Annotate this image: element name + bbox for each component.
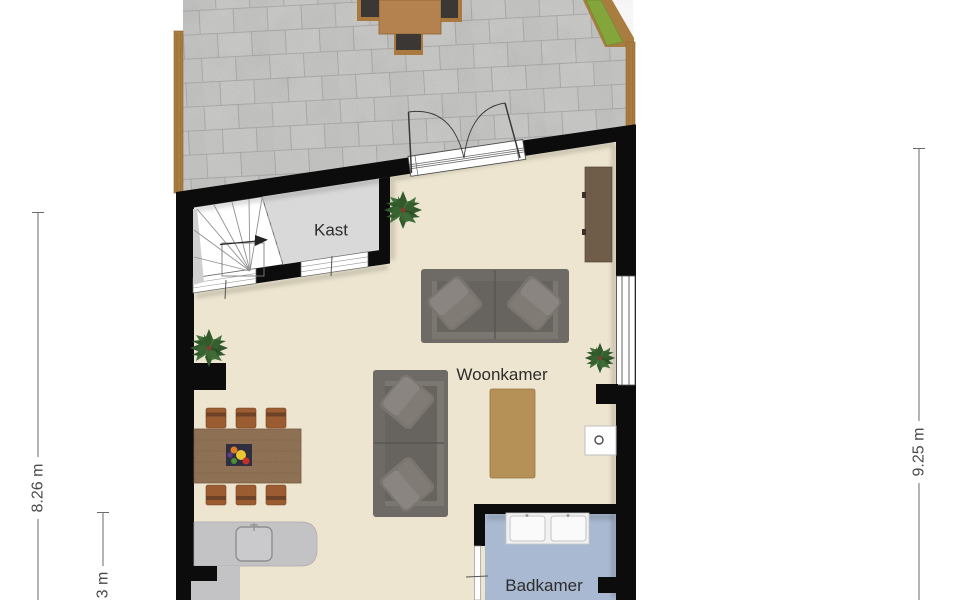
svg-text:9.25 m: 9.25 m — [911, 428, 928, 477]
svg-text:3 m: 3 m — [95, 572, 112, 599]
svg-text:Badkamer: Badkamer — [505, 576, 583, 595]
svg-text:Kast: Kast — [314, 221, 348, 240]
svg-text:Woonkamer: Woonkamer — [456, 365, 548, 384]
svg-text:8.26 m: 8.26 m — [30, 464, 47, 513]
